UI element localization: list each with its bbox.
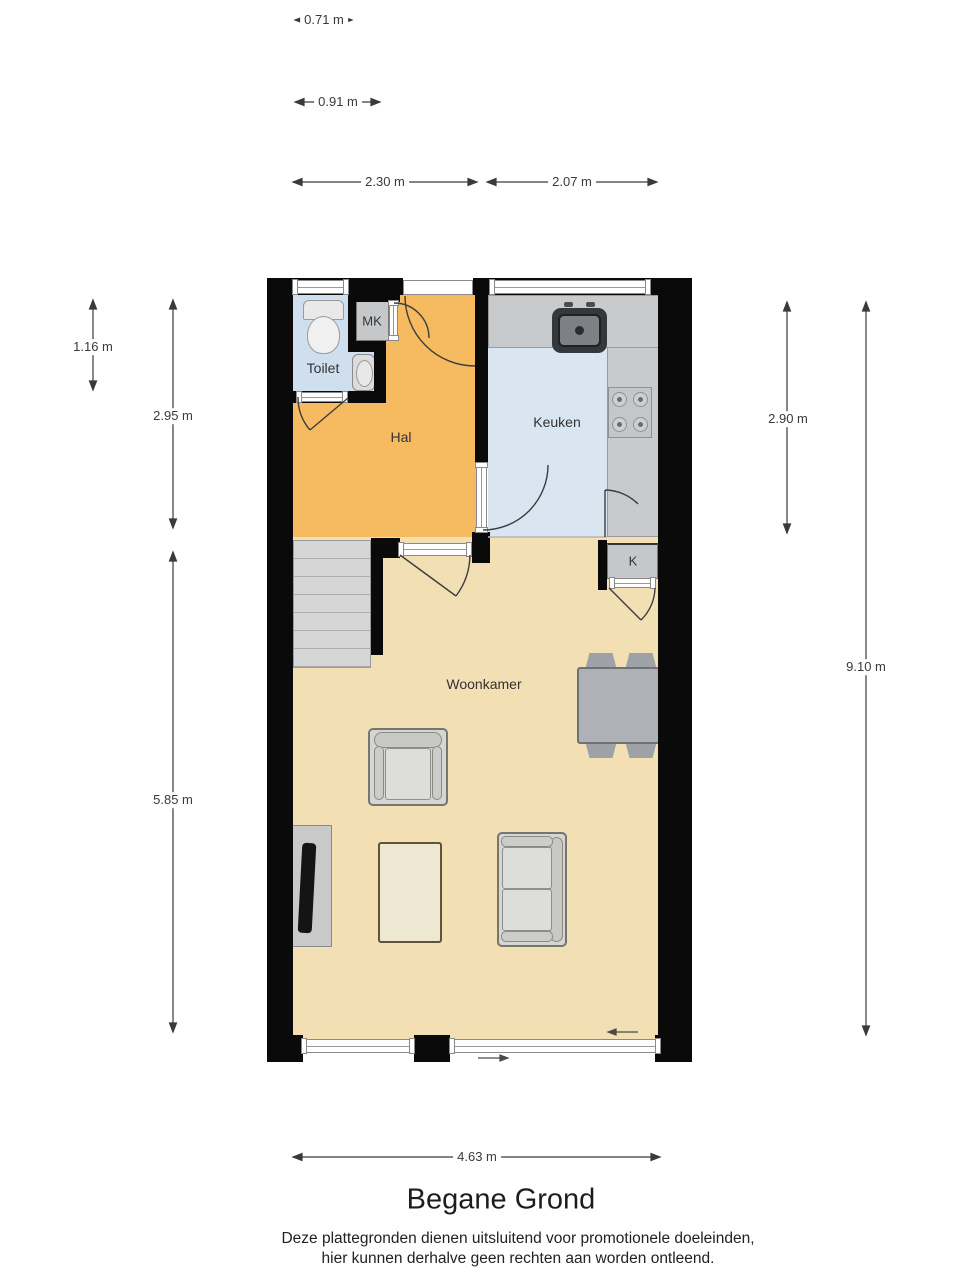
toilet-sink-basin (356, 360, 373, 387)
disclaimer-line-2: hier kunnen derhalve geen rechten aan wo… (322, 1250, 715, 1268)
kitchen-sink-drain (575, 326, 584, 335)
label-woonkamer: Woonkamer (446, 676, 521, 692)
stove-burner-1 (612, 392, 627, 407)
door-opening-k (610, 578, 655, 588)
page-title: Begane Grond (407, 1184, 596, 1217)
wall-stairs-right (371, 538, 383, 655)
label-k: K (629, 554, 638, 569)
sliding-door-left (302, 1039, 414, 1053)
wall-post-keuken (472, 532, 490, 563)
dim-463: 4.63 m (453, 1149, 501, 1165)
armchair-arm-right (432, 746, 442, 800)
kitchen-counter-right (607, 347, 660, 537)
dim-295: 2.95 m (149, 408, 197, 424)
door-opening-woonkamer (399, 543, 471, 556)
window-keuken (490, 280, 650, 294)
armchair-cushion (385, 748, 431, 800)
dim-091: 0.91 m (314, 94, 362, 110)
sofa-arm-top (501, 836, 553, 847)
wall-bottom-middle (414, 1035, 450, 1062)
kitchen-faucet-right (586, 302, 595, 307)
label-keuken: Keuken (533, 414, 580, 430)
wall-right (658, 278, 692, 1062)
wall-toilet-right (374, 345, 386, 403)
wall-k-left (598, 540, 607, 590)
coffee-table (378, 842, 442, 943)
dining-table (577, 667, 660, 744)
door-opening-toilet (297, 392, 347, 402)
sofa-cushion (502, 847, 552, 889)
dim-207: 2.07 m (548, 174, 596, 190)
dim-290: 2.90 m (764, 411, 812, 427)
stove-burner-4 (633, 417, 648, 432)
wall-hal-keuken (475, 295, 488, 462)
staircase (293, 540, 371, 668)
sofa-arm-bottom (501, 931, 553, 942)
wall-left (267, 278, 293, 1062)
armchair-backrest (374, 732, 442, 748)
dim-230: 2.30 m (361, 174, 409, 190)
sliding-door-right (450, 1039, 660, 1053)
door-opening-mk (389, 301, 398, 340)
label-hal: Hal (390, 429, 411, 445)
toilet-bowl (307, 316, 340, 354)
stove-burner-2 (633, 392, 648, 407)
wall-bottom-left (267, 1035, 303, 1062)
front-door-threshold (403, 280, 473, 295)
label-toilet: Toilet (307, 360, 340, 376)
door-opening-keuken (476, 463, 487, 532)
window-toilet (293, 280, 348, 294)
label-mk: MK (362, 314, 382, 329)
dim-116: 1.16 m (69, 339, 117, 355)
sofa-cushion (502, 889, 552, 931)
dim-585: 5.85 m (149, 792, 197, 808)
dim-910: 9.10 m (842, 659, 890, 675)
armchair-arm-left (374, 746, 384, 800)
floorplan-page: 0.71 m 0.91 m 2.30 m 2.07 m 1.16 m 2.95 … (0, 0, 960, 1280)
disclaimer-line-1: Deze plattegronden dienen uitsluitend vo… (281, 1230, 754, 1248)
stove-burner-3 (612, 417, 627, 432)
dim-071: 0.71 m (300, 12, 348, 28)
kitchen-faucet-left (564, 302, 573, 307)
